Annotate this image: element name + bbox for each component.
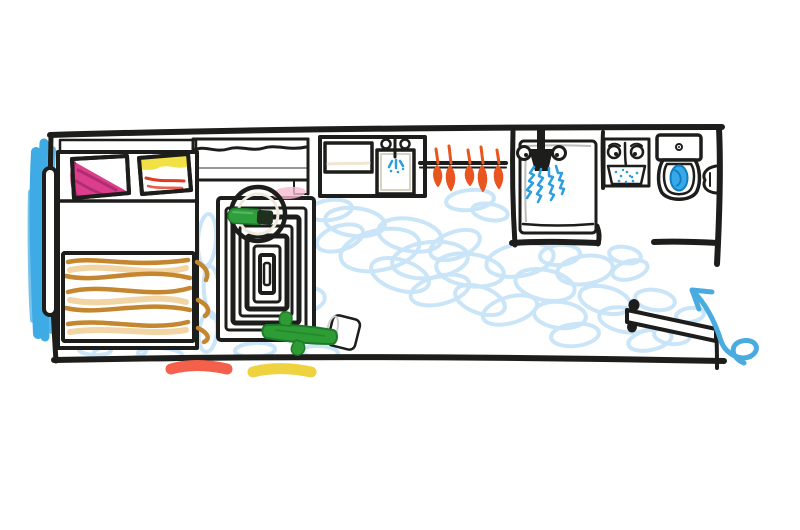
sketch-canvas: Hand-drawn studio apartment floor plan s… bbox=[0, 0, 800, 530]
bathroom-wall-left bbox=[513, 131, 515, 245]
shower-wall-bottom bbox=[512, 242, 598, 243]
cactus-arm-bottom bbox=[291, 340, 304, 355]
bottle-cap bbox=[257, 210, 274, 225]
kitchen-sink bbox=[377, 137, 414, 194]
bathroom-sink bbox=[604, 139, 649, 186]
cactus-arm-top bbox=[279, 312, 292, 326]
toilet bbox=[657, 135, 701, 199]
bathroom-wall-bottom bbox=[654, 242, 718, 243]
toilet-water bbox=[671, 166, 688, 191]
door-knob-bottom bbox=[627, 322, 637, 333]
sliding-door bbox=[44, 168, 56, 315]
doormat-red bbox=[171, 366, 227, 369]
floor-plan-drawing: Hand-drawn studio apartment floor plan s… bbox=[0, 0, 800, 530]
door-knob-top bbox=[629, 299, 640, 311]
faucet-handle-right bbox=[401, 140, 410, 149]
green-bottle bbox=[228, 208, 274, 225]
faucet-handle-left bbox=[382, 140, 391, 149]
shower-stall bbox=[518, 129, 597, 233]
bed bbox=[58, 152, 208, 348]
doormat-yellow bbox=[253, 369, 311, 372]
